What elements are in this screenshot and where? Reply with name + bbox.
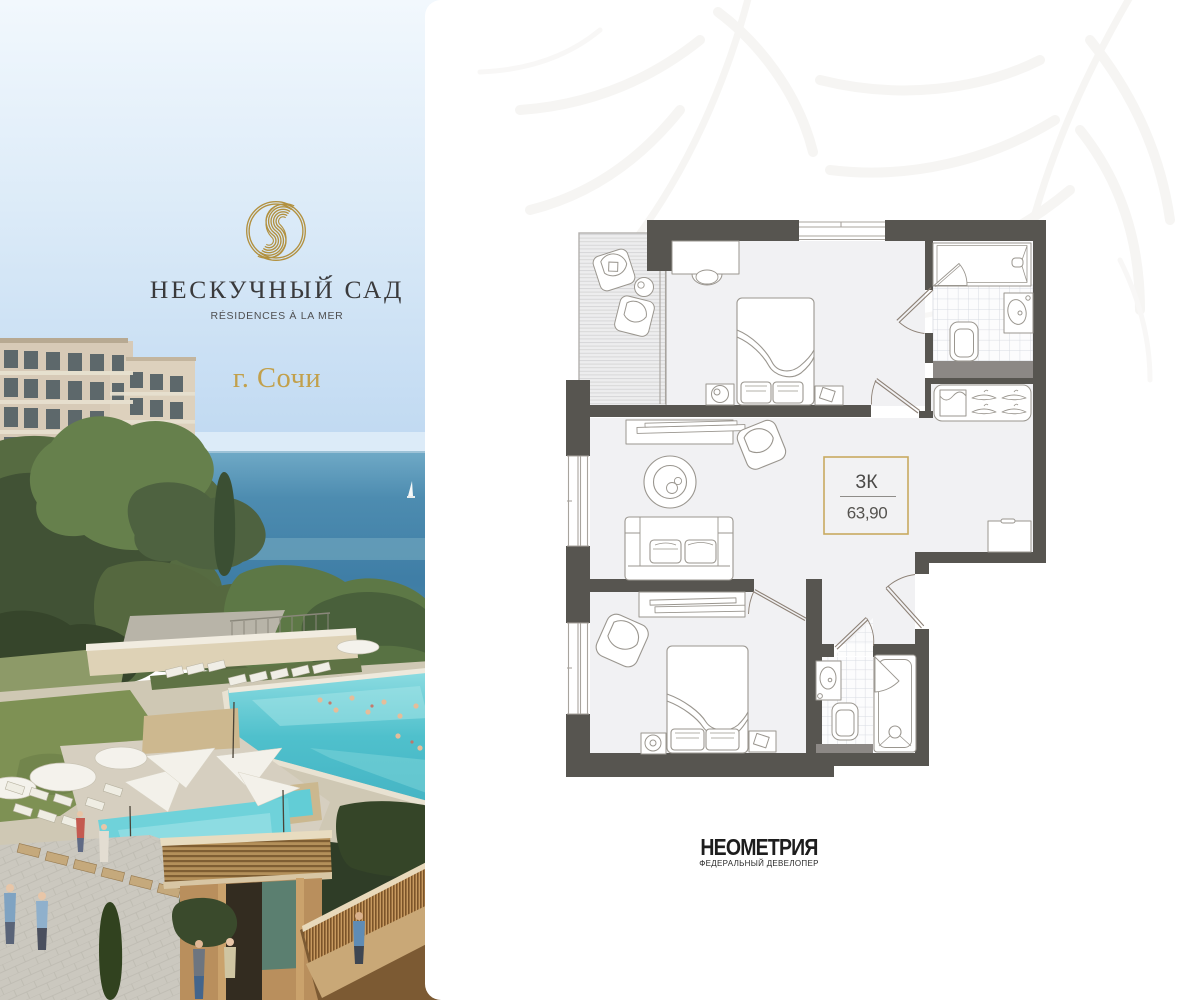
- svg-text:63,90: 63,90: [847, 504, 888, 523]
- svg-text:3К: 3К: [855, 471, 878, 493]
